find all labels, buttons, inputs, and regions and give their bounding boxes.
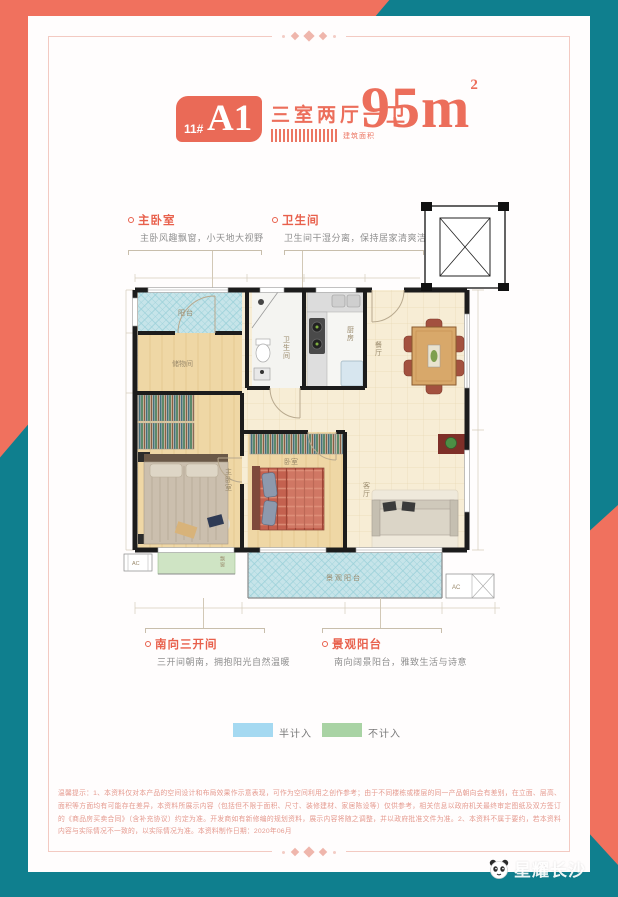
- ornament-diamond: [291, 848, 299, 856]
- ornament-dot: [282, 35, 285, 38]
- annotation-south-leader: [203, 598, 204, 628]
- poster-page: 11# A1 三室两厅一卫 建筑面积 95m2 主卧室 主卧风趣飘窗，小天地大视…: [0, 0, 618, 897]
- room-label-kitchen: 厨房: [347, 326, 355, 342]
- room-label-living: 客厅: [363, 481, 371, 498]
- annotation-view-leader: [380, 598, 381, 628]
- annotation-title-text: 景观阳台: [332, 636, 382, 652]
- top-ornament: [272, 28, 346, 44]
- unit-name: A1: [207, 97, 252, 140]
- panda-logo-icon: [488, 858, 510, 880]
- ornament-diamond: [303, 846, 314, 857]
- annotation-south-desc: 三开间朝南，拥抱阳光自然温暖: [157, 655, 290, 668]
- barcode-icon: [271, 129, 337, 142]
- disclaimer-text: 温馨提示：1、本资料仅对本产品的空间设计和布局效果作示意表现，可作为空间利用之创…: [58, 788, 561, 839]
- bullet-ring-icon: [145, 641, 151, 647]
- ornament-dot: [333, 35, 336, 38]
- room-label-view-balcony: 景观阳台: [326, 573, 362, 582]
- ornament-dot: [282, 851, 285, 854]
- ornament-diamond: [291, 32, 299, 40]
- room-label-master: 主卧室: [225, 467, 233, 492]
- annotation-south-title: 南向三开间: [145, 636, 218, 652]
- ac-label: AC: [132, 561, 140, 567]
- annotation-title-text: 南向三开间: [155, 636, 218, 652]
- annotation-view-title: 景观阳台: [322, 636, 382, 652]
- area-superscript: 2: [470, 77, 479, 93]
- legend-swatch-half: [233, 723, 273, 737]
- area-label-row: 建筑面积: [271, 129, 375, 142]
- area-number: 95: [361, 75, 421, 140]
- watermark-text: 星耀长沙: [514, 856, 586, 881]
- unit-badge: 11# A1: [176, 96, 262, 142]
- floor-plan: 阳台 储物间 卫生间 厨房 餐厅 客厅 主卧室 卧室 景观阳台 飘窗 AC AC: [120, 196, 512, 624]
- room-label-dining: 餐厅: [375, 340, 383, 357]
- ac-label: AC: [452, 585, 461, 591]
- legend-label-half: 半计入: [279, 725, 312, 740]
- legend-swatch-excluded: [322, 723, 362, 737]
- room-label-bath: 卫生间: [283, 336, 291, 360]
- room-label-bay-window: 飘窗: [219, 556, 225, 568]
- annotation-view-bracket: [322, 628, 442, 633]
- room-label-storage: 储物间: [172, 359, 193, 368]
- bullet-ring-icon: [322, 641, 328, 647]
- ornament-dot: [333, 851, 336, 854]
- watermark: 星耀长沙: [488, 856, 586, 881]
- annotation-south-bracket: [145, 628, 265, 633]
- legend-label-excluded: 不计入: [368, 725, 401, 740]
- room-label-bedroom: 卧室: [284, 457, 298, 466]
- content-card: 11# A1 三室两厅一卫 建筑面积 95m2 主卧室 主卧风趣飘窗，小天地大视…: [28, 16, 590, 872]
- area-value: 95m2: [361, 76, 479, 140]
- ornament-diamond: [319, 848, 327, 856]
- block-number: 11#: [184, 122, 203, 136]
- ornament-diamond: [303, 30, 314, 41]
- bottom-ornament: [272, 844, 346, 860]
- ornament-diamond: [319, 32, 327, 40]
- area-unit: m: [421, 75, 470, 140]
- annotation-view-desc: 南向阔景阳台，雅致生活与诗意: [334, 655, 467, 668]
- room-label-balcony: 阳台: [178, 308, 194, 317]
